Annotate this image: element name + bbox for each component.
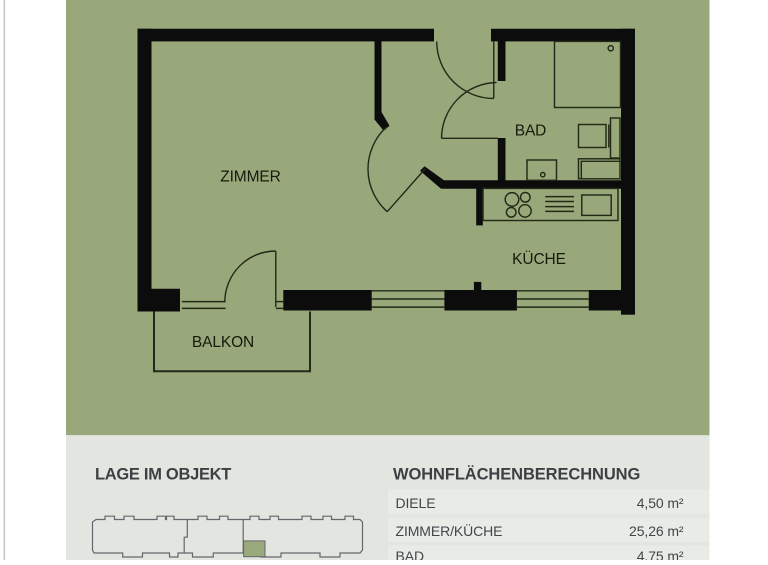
svg-text:WOHNFLÄCHENBERECHNUNG: WOHNFLÄCHENBERECHNUNG [393,466,640,484]
svg-text:BAD: BAD [515,123,547,140]
svg-text:ZIMMER: ZIMMER [220,169,281,186]
svg-text:BALKON: BALKON [192,334,254,351]
svg-text:4,75 m²: 4,75 m² [637,548,684,560]
svg-text:4,50 m²: 4,50 m² [637,495,684,511]
svg-text:ZIMMER/KÜCHE: ZIMMER/KÜCHE [396,522,503,539]
svg-text:25,26 m²: 25,26 m² [629,523,684,539]
svg-text:DIELE: DIELE [396,495,436,511]
svg-text:KÜCHE: KÜCHE [512,250,566,268]
svg-text:LAGE IM OBJEKT: LAGE IM OBJEKT [95,466,231,484]
svg-text:BAD: BAD [396,548,425,560]
